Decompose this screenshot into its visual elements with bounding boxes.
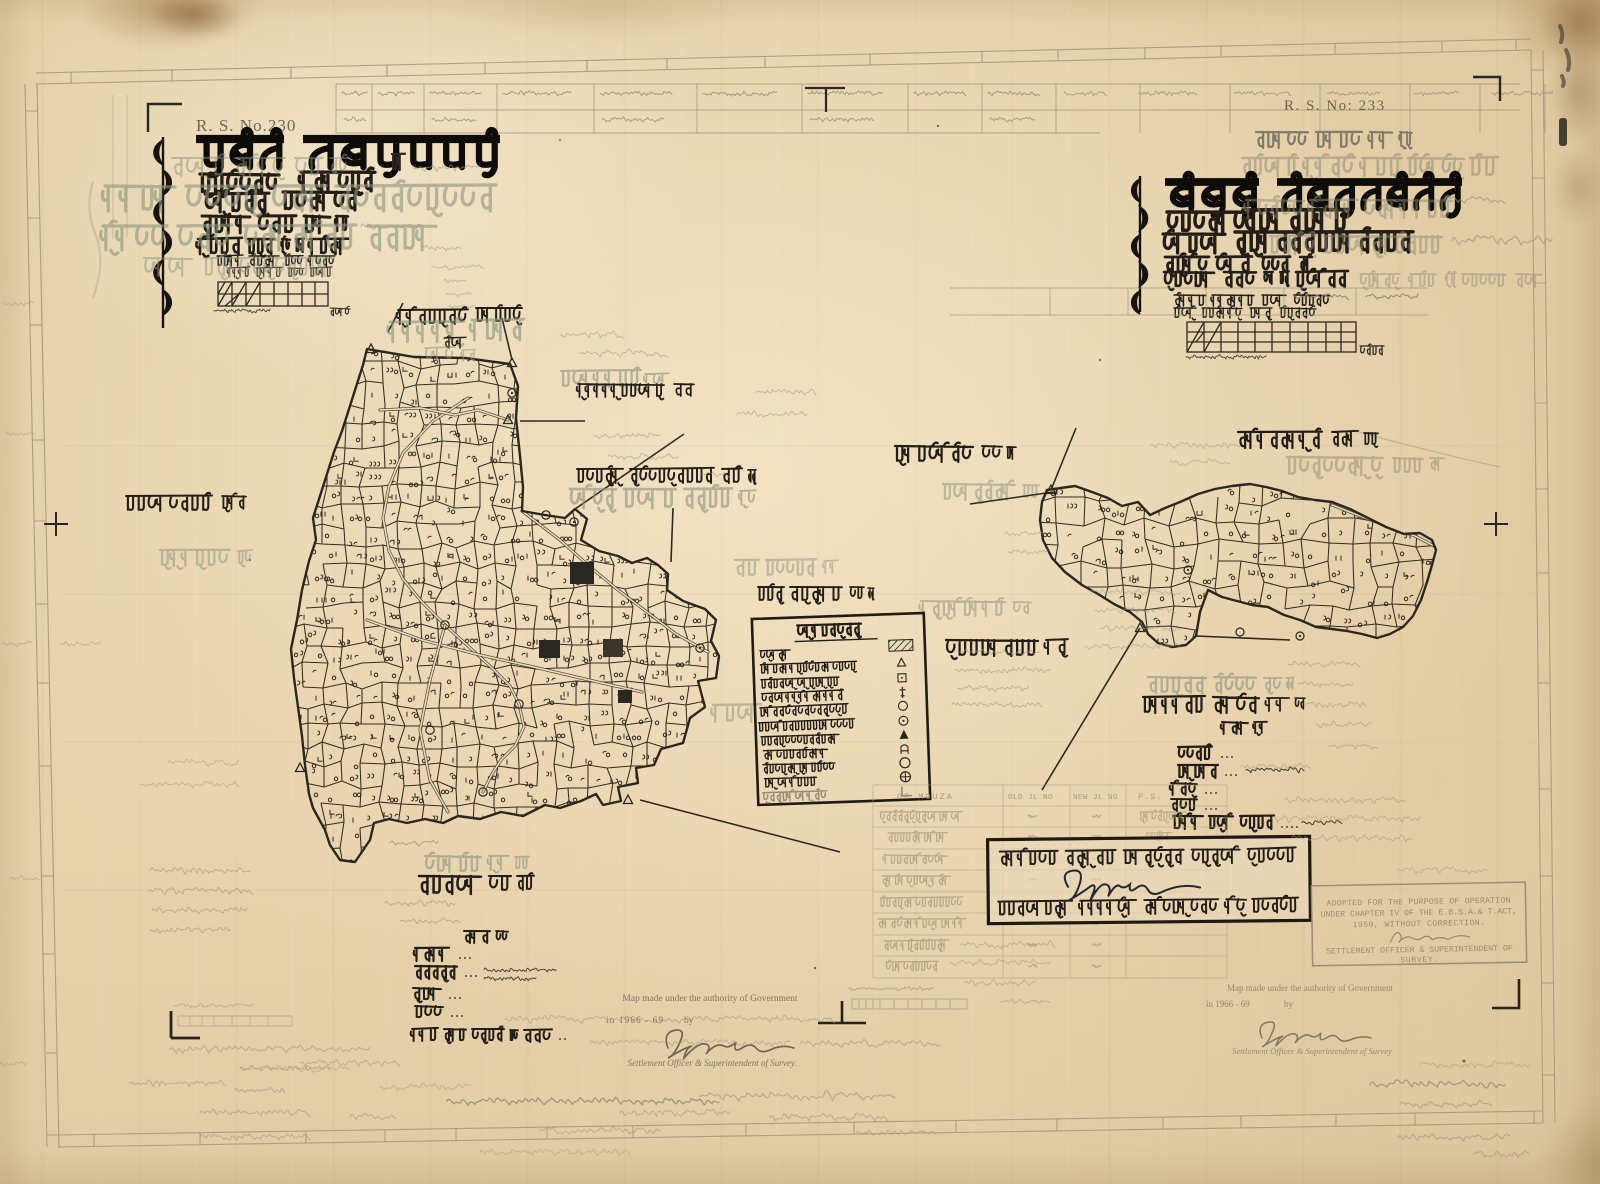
svg-text:OF MOUZA: OF MOUZA [897, 792, 954, 802]
svg-text:1950, WITHOUT CORRECTION.: 1950, WITHOUT CORRECTION. [1353, 919, 1486, 930]
svg-text:NEW JL NO: NEW JL NO [1073, 794, 1118, 802]
svg-text:SURVEY.: SURVEY. [1400, 956, 1439, 966]
svg-text:ADOPTED FOR THE PURPOSE OF OPE: ADOPTED FOR THE PURPOSE OF OPERATION [1327, 896, 1511, 908]
svg-text:in 1966 - 69: in 1966 - 69 [1206, 999, 1250, 1009]
svg-text:by: by [1284, 999, 1294, 1009]
svg-text:Map made under the authority o: Map made under the authority of Governme… [1227, 983, 1393, 993]
svg-text:Settlement Officer & Superinte: Settlement Officer & Superintendent of S… [1232, 1046, 1392, 1056]
svg-text:OLD JL NO: OLD JL NO [1008, 794, 1053, 802]
svg-text:Map made under the authority o: Map made under the authority of Governme… [622, 993, 798, 1004]
svg-text:P.S.: P.S. [1138, 792, 1162, 802]
svg-text:R. S. No: 233: R. S. No: 233 [1284, 98, 1386, 114]
svg-text:Settlement Officer & Superinte: Settlement Officer & Superintendent of S… [628, 1058, 797, 1068]
svg-text:SETTLEMENT OFFICER & SUPERINTE: SETTLEMENT OFFICER & SUPERINTENDENT OF [1326, 944, 1513, 956]
svg-text:UNDER CHAPTER IV OF THE E.B.S.: UNDER CHAPTER IV OF THE E.B.S.A.& T.ACT, [1320, 907, 1517, 919]
